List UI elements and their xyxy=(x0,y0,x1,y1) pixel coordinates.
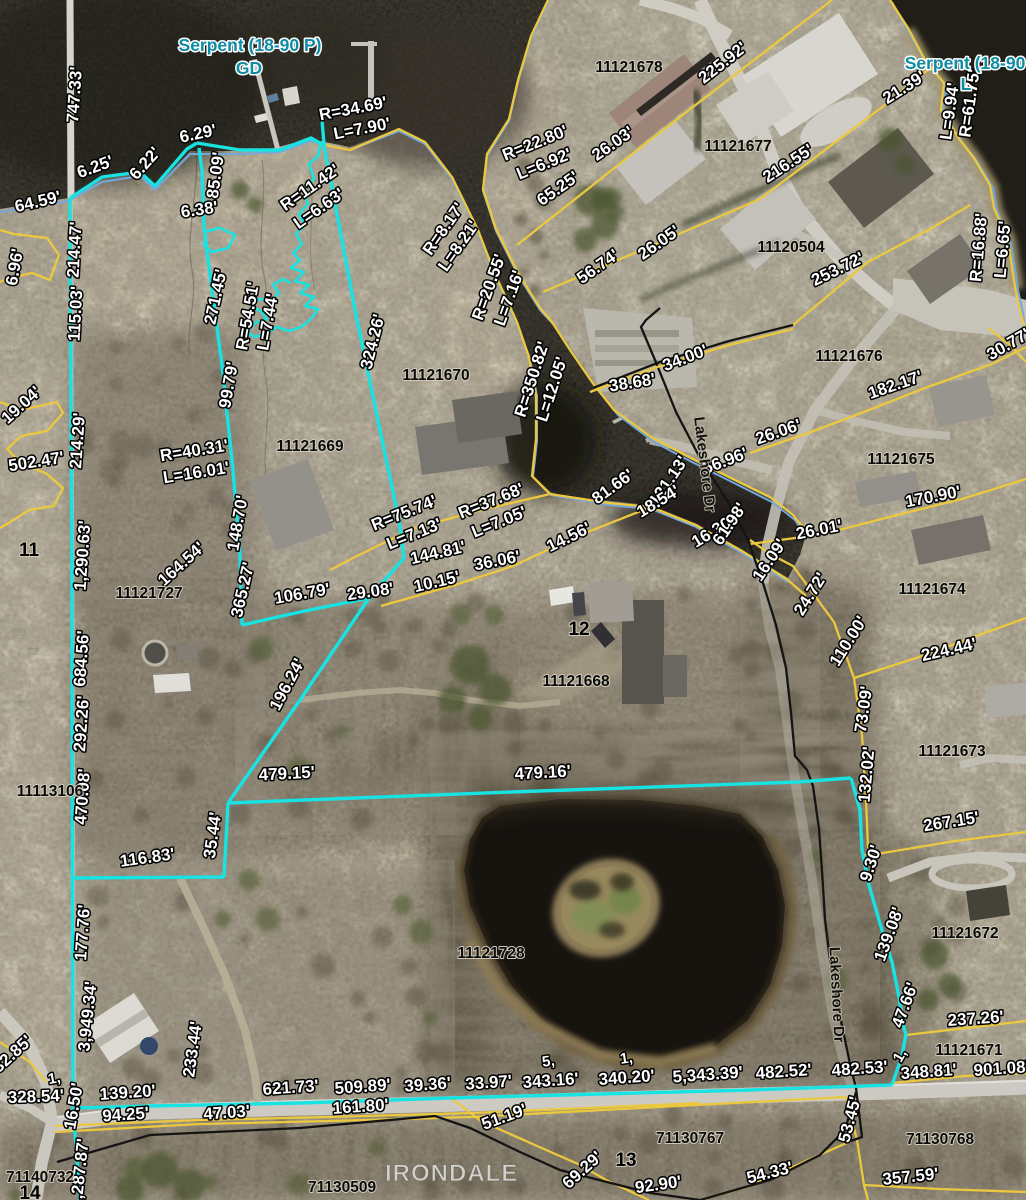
svg-text:11113106: 11113106 xyxy=(17,783,84,800)
svg-text:11121677: 11121677 xyxy=(704,138,771,155)
svg-text:Serpent (18-90: Serpent (18-90 xyxy=(905,53,1026,73)
svg-text:11: 11 xyxy=(19,540,40,561)
svg-text:139.20': 139.20' xyxy=(99,1081,156,1104)
svg-text:94.25': 94.25' xyxy=(102,1103,150,1125)
svg-text:71130767: 71130767 xyxy=(656,1130,724,1147)
svg-text:71130768: 71130768 xyxy=(906,1131,974,1148)
svg-text:747.33': 747.33' xyxy=(63,66,86,123)
svg-text:115.03': 115.03' xyxy=(65,286,87,342)
svg-text:479.16': 479.16' xyxy=(514,762,571,784)
svg-text:11121678: 11121678 xyxy=(595,59,663,76)
svg-text:13: 13 xyxy=(615,1150,636,1171)
svg-text:340.20': 340.20' xyxy=(598,1066,655,1089)
svg-text:348.81': 348.81' xyxy=(900,1060,957,1083)
svg-text:11121668: 11121668 xyxy=(542,673,610,690)
svg-text:11120504: 11120504 xyxy=(757,239,825,256)
svg-text:214.47': 214.47' xyxy=(64,221,86,278)
svg-text:IRONDALE: IRONDALE xyxy=(385,1160,518,1187)
svg-text:901.08': 901.08' xyxy=(973,1057,1026,1080)
svg-text:11121670: 11121670 xyxy=(402,367,469,384)
svg-text:Serpent (18-90 P): Serpent (18-90 P) xyxy=(179,35,322,55)
svg-text:L: L xyxy=(961,74,972,94)
svg-text:11121671: 11121671 xyxy=(935,1042,1003,1059)
svg-text:482.53': 482.53' xyxy=(831,1057,888,1080)
svg-text:292.26': 292.26' xyxy=(70,695,93,752)
svg-text:GD: GD xyxy=(236,58,262,78)
svg-text:33.97': 33.97' xyxy=(465,1071,513,1093)
svg-text:11121675: 11121675 xyxy=(867,451,935,468)
svg-text:11121676: 11121676 xyxy=(815,348,883,365)
svg-text:237.26': 237.26' xyxy=(947,1007,1004,1030)
svg-text:47.03': 47.03' xyxy=(203,1101,251,1123)
svg-text:11121673: 11121673 xyxy=(918,743,986,760)
svg-text:11121674: 11121674 xyxy=(898,581,966,598)
svg-text:343.16': 343.16' xyxy=(522,1069,579,1092)
svg-text:1,: 1, xyxy=(619,1049,634,1068)
svg-text:621.73': 621.73' xyxy=(262,1076,319,1099)
svg-text:11121672: 11121672 xyxy=(931,925,998,942)
svg-text:161.80': 161.80' xyxy=(332,1095,389,1118)
svg-text:71130509: 71130509 xyxy=(308,1179,376,1196)
svg-text:12: 12 xyxy=(568,619,589,640)
svg-text:684.56': 684.56' xyxy=(70,630,93,687)
svg-text:11121669: 11121669 xyxy=(276,438,344,455)
svg-text:177.76': 177.76' xyxy=(71,904,94,961)
svg-text:479.15': 479.15' xyxy=(258,763,315,785)
svg-text:14: 14 xyxy=(19,1183,41,1200)
svg-text:5,: 5, xyxy=(541,1052,556,1071)
svg-text:39.36': 39.36' xyxy=(404,1073,452,1095)
svg-text:11121728: 11121728 xyxy=(457,945,525,962)
svg-text:214.29': 214.29' xyxy=(66,412,89,469)
svg-text:482.52': 482.52' xyxy=(755,1060,812,1083)
svg-text:328.54': 328.54' xyxy=(7,1086,64,1107)
svg-text:11121727: 11121727 xyxy=(115,585,182,602)
